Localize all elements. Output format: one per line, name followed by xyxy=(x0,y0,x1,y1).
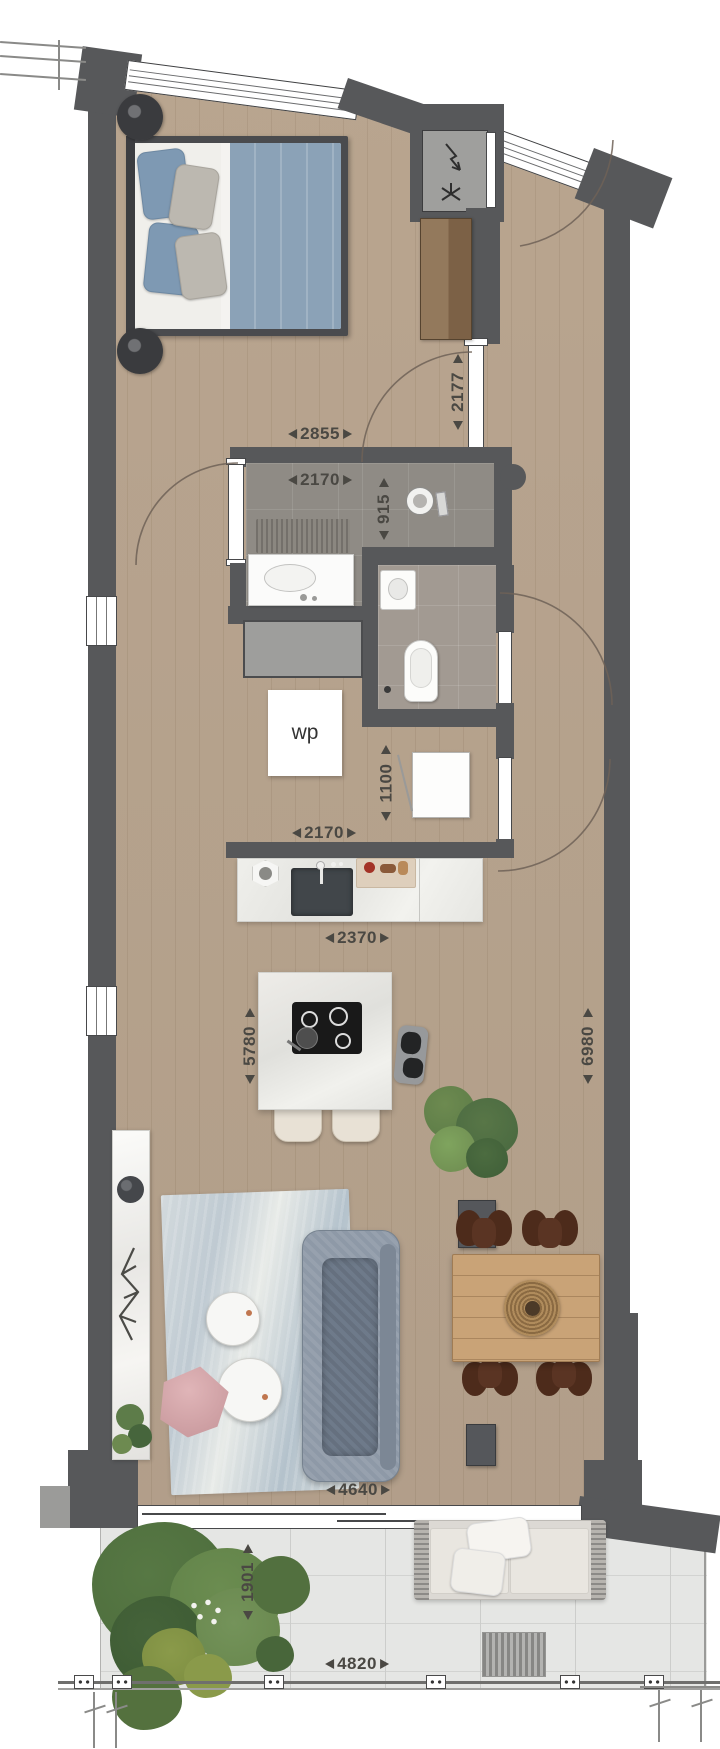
corner-sink-bowl xyxy=(388,578,408,600)
bathroom-wall-mid xyxy=(362,547,512,565)
arrow-right-icon xyxy=(343,429,352,439)
neighbour-window-mullion xyxy=(58,40,60,90)
railing-post xyxy=(560,1675,580,1689)
coffee-table-handle xyxy=(262,1394,268,1400)
kitchen-counter-seam xyxy=(419,858,420,922)
arrow-up-icon xyxy=(453,354,463,363)
toilet-wall-bottom xyxy=(362,709,514,727)
vanity-basin xyxy=(264,564,316,592)
dimension-entry-hall: 2177 xyxy=(449,354,467,430)
toilet-door-opening xyxy=(498,631,512,705)
coffee-table xyxy=(206,1292,260,1346)
coffee-table xyxy=(218,1358,282,1422)
electric-meter-icon xyxy=(432,138,478,208)
table-centerpiece-bowl xyxy=(525,1301,540,1316)
food-item xyxy=(398,861,408,875)
dimension-bathroom-inner: 2170 xyxy=(288,470,352,490)
railing-post xyxy=(112,1675,132,1689)
section-tick xyxy=(691,1699,713,1708)
laundry-space xyxy=(243,620,363,678)
dining-chair xyxy=(456,1206,512,1256)
arrow-left-icon xyxy=(288,429,297,439)
faucet-handle xyxy=(331,862,336,867)
utility-door-opening xyxy=(498,757,512,841)
food-item xyxy=(380,864,396,873)
bathroom-door-opening xyxy=(228,463,244,563)
dimension-bathroom-depth: 915 xyxy=(375,478,393,540)
vanity-faucet xyxy=(312,596,317,601)
floor-grate xyxy=(482,1632,546,1677)
balcony-railing-line xyxy=(58,1688,720,1690)
dimension-utility-depth: 1100 xyxy=(377,745,395,821)
plant xyxy=(466,1138,508,1178)
bed-pillow-grey xyxy=(174,231,228,301)
side-table-dark xyxy=(466,1424,496,1466)
shower-head-center xyxy=(413,494,427,508)
outdoor-pillow xyxy=(450,1547,507,1597)
bed-sheet-fold xyxy=(221,143,230,329)
bed-headboard xyxy=(126,136,135,336)
dimension-bathroom-outer: 2855 xyxy=(288,424,352,444)
balcony-railing xyxy=(58,1681,720,1684)
section-mark xyxy=(115,1692,117,1748)
section-tick xyxy=(649,1699,671,1708)
toilet-wall-left xyxy=(362,547,378,727)
bedside-table xyxy=(117,328,163,374)
bathroom-wall-bottom xyxy=(226,842,512,858)
neighbour-window-line xyxy=(0,73,86,81)
appliance xyxy=(412,752,470,818)
dining-chair xyxy=(522,1206,578,1256)
bathroom-wall-top xyxy=(230,447,510,463)
dimension-kitchen-width: 2370 xyxy=(325,928,389,948)
decor-bowl xyxy=(117,1176,144,1203)
dimension-balcony-depth: 1901 xyxy=(239,1544,257,1620)
toilet-seat xyxy=(410,648,432,688)
cooktop-burner xyxy=(301,1011,318,1028)
neighbour-window-line xyxy=(0,41,86,49)
plant xyxy=(112,1434,132,1454)
decor-branch xyxy=(112,1246,152,1342)
floor-plan-canvas: wp xyxy=(0,0,720,1749)
faucet-handle xyxy=(339,862,343,866)
outdoor-sofa-arm xyxy=(414,1520,429,1600)
balcony-plant-moss xyxy=(184,1654,232,1698)
heat-pump-box: wp xyxy=(268,690,342,776)
dimension-living-length-right: 6980 xyxy=(579,1008,597,1084)
pan xyxy=(296,1027,318,1049)
right-wall-step xyxy=(604,1313,638,1465)
plant-flowers xyxy=(186,1596,226,1628)
section-mark xyxy=(658,1690,660,1742)
toilet-wall-right-upper xyxy=(496,565,514,633)
dimension-utility-width: 2170 xyxy=(292,823,356,843)
vanity-faucet xyxy=(300,594,307,601)
cooktop-burner xyxy=(335,1033,351,1049)
dimension-living-width: 4640 xyxy=(326,1480,390,1500)
neighbour-window-line xyxy=(0,55,86,63)
food-item xyxy=(364,862,375,873)
section-line xyxy=(640,1686,720,1688)
floor-drain xyxy=(384,686,391,693)
door-frame xyxy=(226,458,246,465)
balcony-plant xyxy=(250,1556,310,1614)
outdoor-sofa-arm xyxy=(591,1520,606,1600)
arrow-left-icon xyxy=(288,475,297,485)
wardrobe xyxy=(420,218,472,340)
heat-pump-label: wp xyxy=(292,721,319,745)
railing-post xyxy=(426,1675,446,1689)
sofa-back xyxy=(380,1244,396,1470)
railing-post xyxy=(264,1675,284,1689)
radiator-bump xyxy=(500,464,526,490)
arrow-right-icon xyxy=(343,475,352,485)
toilet-wall-right-lower xyxy=(496,703,514,727)
plate-center xyxy=(259,867,272,880)
shower-drain-mat xyxy=(256,519,350,553)
decor-object xyxy=(402,1057,424,1079)
bedroom-door-opening xyxy=(468,344,484,450)
left-wall-window-2 xyxy=(86,986,117,1036)
section-mark xyxy=(93,1692,95,1748)
dimension-living-length-left: 5780 xyxy=(241,1008,259,1084)
meter-cupboard-door xyxy=(486,132,496,208)
bed-blanket xyxy=(228,143,341,329)
right-wall xyxy=(604,182,630,1314)
balcony-plant xyxy=(256,1636,294,1672)
bottom-left-corner-wall xyxy=(68,1450,138,1528)
coffee-table-handle xyxy=(246,1310,252,1316)
section-mark xyxy=(700,1690,702,1742)
railing-post xyxy=(74,1675,94,1689)
sofa-seat xyxy=(322,1258,378,1456)
bedside-table xyxy=(117,94,163,140)
left-wall-window-1 xyxy=(86,596,117,646)
bottom-left-outer-wall xyxy=(40,1486,70,1528)
section-tick xyxy=(84,1705,106,1714)
dimension-balcony-width: 4820 xyxy=(325,1654,389,1674)
arrow-down-icon xyxy=(453,421,463,430)
kitchen-faucet-stem xyxy=(320,868,323,884)
utility-wall-right-upper xyxy=(496,727,514,759)
bathroom-wall-left-lower xyxy=(230,563,246,610)
cooktop-burner xyxy=(329,1007,348,1026)
